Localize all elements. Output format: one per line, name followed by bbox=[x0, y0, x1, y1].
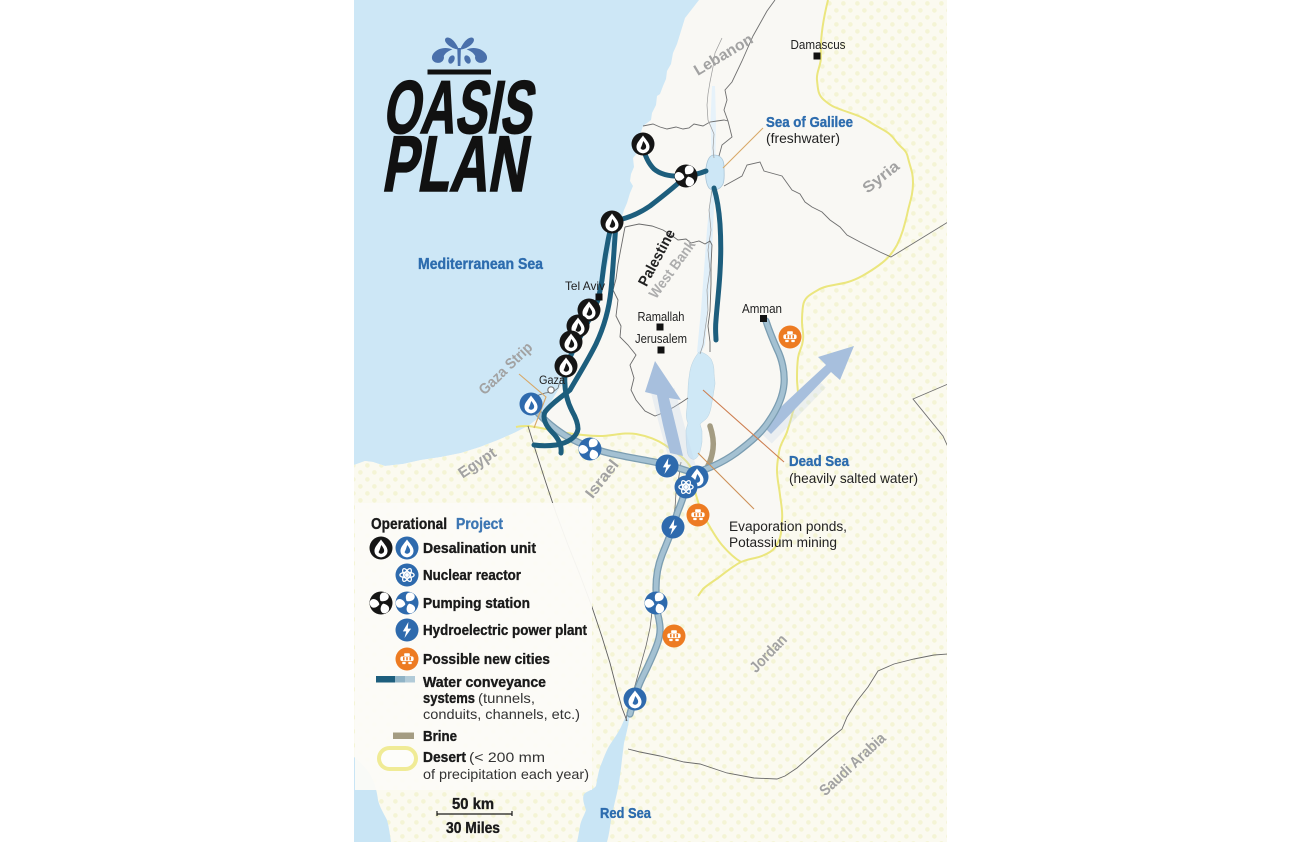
svg-text:Tel Aviv: Tel Aviv bbox=[565, 279, 605, 293]
svg-text:Desert: Desert bbox=[423, 750, 466, 766]
svg-text:Dead Sea: Dead Sea bbox=[789, 453, 850, 470]
svg-text:conduits, channels, etc.): conduits, channels, etc.) bbox=[423, 706, 580, 722]
svg-text:Gaza: Gaza bbox=[539, 373, 565, 387]
svg-text:50 km: 50 km bbox=[452, 796, 494, 813]
svg-text:Red Sea: Red Sea bbox=[600, 805, 652, 822]
svg-text:Damascus: Damascus bbox=[791, 38, 846, 52]
svg-text:Mediterranean Sea: Mediterranean Sea bbox=[418, 256, 543, 273]
svg-text:Nuclear reactor: Nuclear reactor bbox=[423, 568, 521, 584]
svg-text:Amman: Amman bbox=[742, 302, 782, 316]
svg-text:PLAN: PLAN bbox=[378, 120, 538, 208]
svg-text:Potassium mining: Potassium mining bbox=[729, 535, 837, 550]
svg-text:Pumping station: Pumping station bbox=[423, 596, 530, 612]
svg-text:Project: Project bbox=[456, 516, 503, 533]
svg-text:Desalination unit: Desalination unit bbox=[423, 541, 536, 557]
svg-text:Evaporation ponds,: Evaporation ponds, bbox=[729, 519, 847, 534]
svg-text:(heavily salted water): (heavily salted water) bbox=[789, 470, 918, 486]
svg-text:Operational: Operational bbox=[371, 516, 447, 533]
svg-text:30 Miles: 30 Miles bbox=[446, 820, 500, 837]
svg-text:(freshwater): (freshwater) bbox=[766, 130, 840, 146]
svg-text:Hydroelectric power plant: Hydroelectric power plant bbox=[423, 623, 587, 639]
svg-text:Sea of Galilee: Sea of Galilee bbox=[766, 114, 853, 131]
svg-text:Possible new cities: Possible new cities bbox=[423, 652, 550, 668]
svg-text:systems: systems bbox=[423, 691, 475, 707]
svg-text:of precipitation each year): of precipitation each year) bbox=[423, 766, 589, 782]
svg-text:Water conveyance: Water conveyance bbox=[423, 675, 546, 691]
svg-text:(tunnels,: (tunnels, bbox=[478, 690, 535, 706]
svg-text:Jerusalem: Jerusalem bbox=[635, 332, 687, 346]
svg-text:Brine: Brine bbox=[423, 729, 457, 745]
svg-text:(< 200 mm: (< 200 mm bbox=[469, 749, 545, 765]
svg-text:Ramallah: Ramallah bbox=[638, 310, 685, 324]
